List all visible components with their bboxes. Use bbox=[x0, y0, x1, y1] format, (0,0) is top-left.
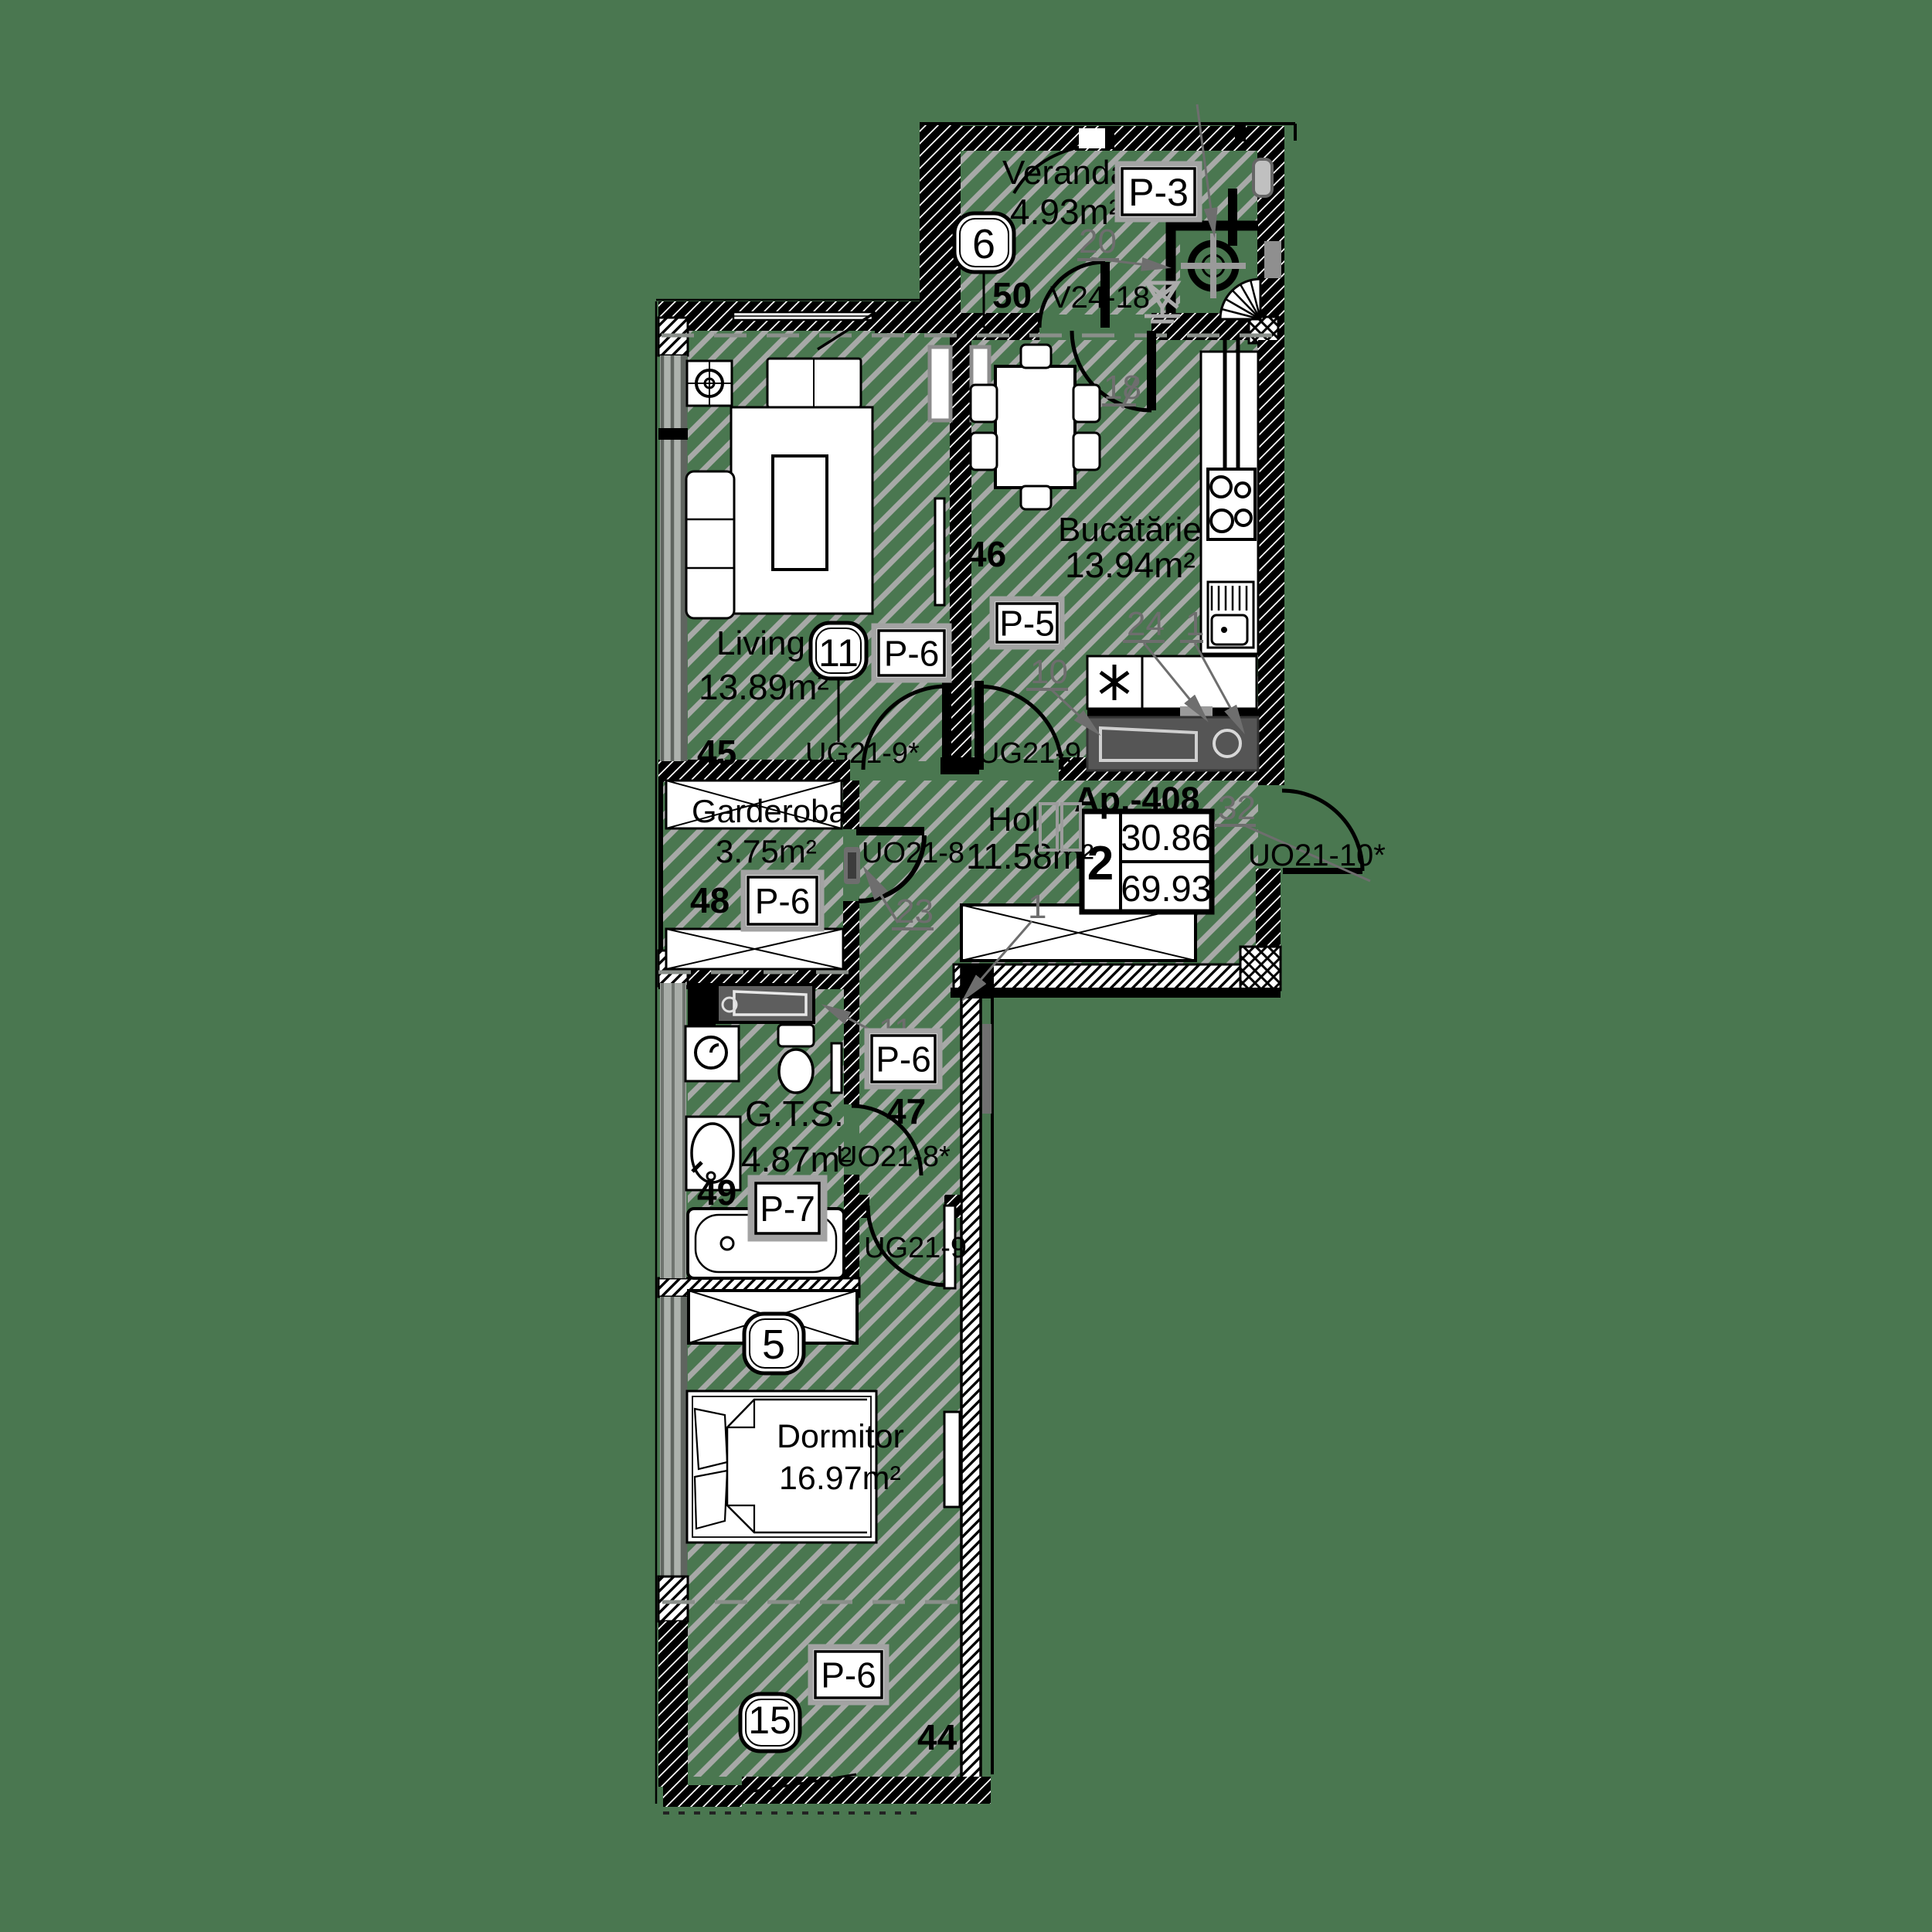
svg-text:45: 45 bbox=[697, 733, 736, 773]
svg-text:10: 10 bbox=[1030, 653, 1068, 691]
svg-text:20: 20 bbox=[1079, 223, 1117, 260]
svg-text:50: 50 bbox=[992, 275, 1032, 315]
svg-text:P-5: P-5 bbox=[999, 604, 1055, 644]
svg-text:Garderoba: Garderoba bbox=[692, 793, 847, 829]
svg-text:UG21-9: UG21-9 bbox=[978, 737, 1081, 770]
svg-text:UG21-9: UG21-9 bbox=[864, 1232, 967, 1264]
svg-text:46: 46 bbox=[967, 534, 1006, 574]
svg-text:P-6: P-6 bbox=[884, 634, 940, 674]
svg-text:Living: Living bbox=[716, 624, 805, 662]
svg-text:P-6: P-6 bbox=[755, 881, 811, 921]
svg-text:13.94m²: 13.94m² bbox=[1065, 545, 1196, 585]
svg-text:6: 6 bbox=[972, 221, 995, 267]
svg-text:11: 11 bbox=[818, 631, 859, 675]
svg-text:13.89m²: 13.89m² bbox=[699, 667, 829, 707]
svg-text:49: 49 bbox=[697, 1172, 736, 1213]
svg-text:Ap.-408: Ap.-408 bbox=[1074, 780, 1200, 819]
svg-text:24: 24 bbox=[1127, 605, 1165, 643]
svg-text:11.58m²: 11.58m² bbox=[966, 836, 1094, 876]
svg-text:P-7: P-7 bbox=[760, 1189, 815, 1229]
svg-text:UO21-8*: UO21-8* bbox=[836, 1141, 951, 1173]
svg-text:23: 23 bbox=[896, 893, 934, 930]
svg-text:Bucătărie: Bucătărie bbox=[1058, 511, 1202, 549]
svg-text:44: 44 bbox=[917, 1717, 957, 1757]
svg-text:UO21-8: UO21-8 bbox=[862, 837, 964, 869]
svg-text:47: 47 bbox=[886, 1091, 926, 1131]
svg-text:1: 1 bbox=[1185, 605, 1204, 643]
svg-text:69.93: 69.93 bbox=[1121, 868, 1212, 909]
svg-text:P-6: P-6 bbox=[876, 1039, 931, 1080]
svg-text:Dormitor: Dormitor bbox=[777, 1418, 904, 1455]
svg-text:V24-18: V24-18 bbox=[1050, 281, 1150, 315]
svg-text:18: 18 bbox=[1104, 369, 1141, 406]
svg-text:5: 5 bbox=[762, 1321, 785, 1368]
svg-text:P-6: P-6 bbox=[821, 1655, 876, 1696]
svg-text:16.97m²: 16.97m² bbox=[779, 1460, 901, 1497]
svg-text:15: 15 bbox=[748, 1699, 791, 1742]
svg-text:48: 48 bbox=[690, 880, 730, 920]
svg-text:3.75m²: 3.75m² bbox=[716, 833, 817, 869]
svg-text:UO21-10*: UO21-10* bbox=[1248, 838, 1386, 872]
svg-text:UG21-9*: UG21-9* bbox=[805, 737, 920, 770]
svg-text:G.T.S.: G.T.S. bbox=[745, 1094, 844, 1134]
svg-text:32: 32 bbox=[1218, 789, 1256, 827]
svg-text:Veranda: Veranda bbox=[1002, 154, 1129, 192]
svg-text:4.87m²: 4.87m² bbox=[741, 1139, 852, 1179]
svg-text:P-3: P-3 bbox=[1128, 171, 1189, 214]
svg-text:Hol: Hol bbox=[988, 801, 1039, 838]
svg-text:1: 1 bbox=[1028, 888, 1046, 926]
svg-text:30.86: 30.86 bbox=[1121, 817, 1212, 858]
